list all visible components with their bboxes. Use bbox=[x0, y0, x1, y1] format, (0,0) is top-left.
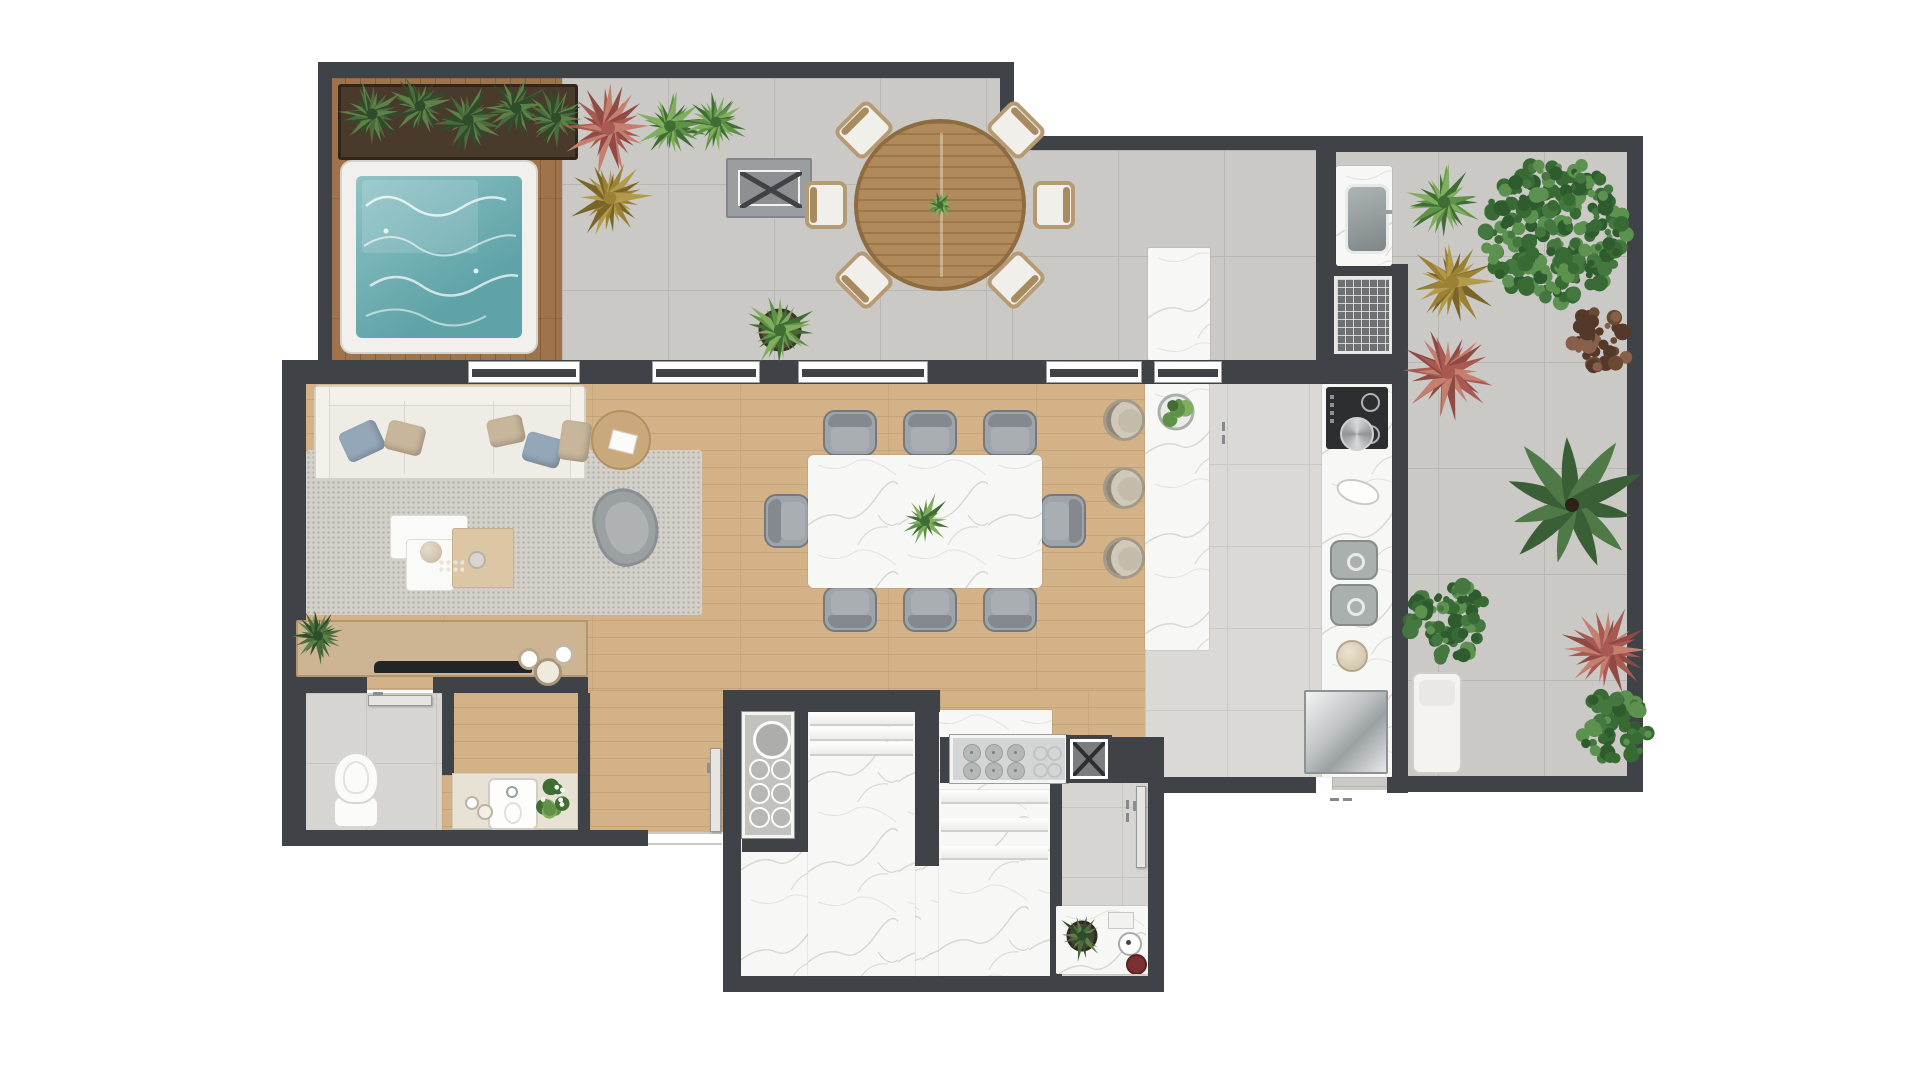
terrace-bench bbox=[726, 158, 812, 218]
entry-threshold bbox=[648, 832, 722, 845]
wall-segment-6 bbox=[1392, 776, 1643, 792]
terrace-lounger bbox=[1412, 672, 1462, 774]
floor-plan-canvas bbox=[0, 0, 1919, 1080]
staircase-lower-flight-tread bbox=[941, 818, 1048, 832]
powder-room-toilet bbox=[333, 752, 379, 804]
kitchen-cooktop bbox=[1326, 387, 1388, 449]
dining-terrace-window-glass bbox=[802, 369, 924, 377]
deck-planter-box bbox=[338, 84, 578, 160]
dining-chair bbox=[1040, 494, 1086, 548]
wall-segment-1 bbox=[318, 62, 332, 362]
living-terrace-window-1 bbox=[468, 361, 580, 383]
island-bar-stool bbox=[1103, 537, 1145, 579]
wall-segment-13 bbox=[442, 693, 454, 775]
wall-segment-21 bbox=[915, 712, 939, 866]
wall-segment-19 bbox=[723, 690, 741, 992]
service-counter bbox=[1056, 906, 1148, 974]
staircase-upper-flight-tread bbox=[810, 727, 913, 741]
counter-bowl bbox=[1336, 640, 1368, 672]
living-room-sofa bbox=[314, 385, 586, 480]
wall-segment-16 bbox=[808, 690, 940, 712]
dining-table-marble bbox=[808, 455, 1042, 588]
vanity-sink-counter bbox=[452, 773, 578, 829]
dining-terrace-window-2-glass bbox=[1050, 369, 1138, 377]
outdoor-round-dining-table bbox=[854, 119, 1026, 291]
dining-chair bbox=[823, 410, 877, 456]
door-handle bbox=[1126, 800, 1132, 822]
staircase-lower-flight-tread bbox=[941, 790, 1048, 804]
wall-segment-12 bbox=[433, 677, 588, 693]
powder-room-door bbox=[368, 695, 432, 706]
barbecue-grill bbox=[1334, 276, 1392, 354]
jacuzzi-spa-pool bbox=[340, 160, 538, 354]
vase bbox=[553, 644, 574, 665]
tv-console bbox=[296, 620, 588, 677]
side-table bbox=[591, 410, 651, 470]
wall-segment-5 bbox=[1627, 136, 1643, 792]
wall-segment-11 bbox=[282, 677, 367, 693]
outdoor-dining-chair bbox=[1033, 181, 1075, 229]
pool-water bbox=[356, 176, 522, 338]
living-terrace-window-1-glass bbox=[472, 369, 576, 377]
dining-terrace-window-2 bbox=[1046, 361, 1142, 383]
canister bbox=[1118, 932, 1142, 956]
barbecue-sink-counter bbox=[1336, 166, 1392, 266]
dining-chair bbox=[903, 410, 957, 456]
vanity-sink bbox=[488, 778, 538, 830]
island-bar-stool bbox=[1103, 399, 1145, 441]
staircase-upper-flight-tread bbox=[810, 742, 913, 756]
wall-segment-18 bbox=[742, 838, 808, 852]
service-door bbox=[1136, 786, 1146, 868]
kettle bbox=[1126, 954, 1147, 974]
dining-chair bbox=[983, 586, 1037, 632]
wall-segment-7 bbox=[1392, 362, 1408, 792]
sofa-pillow bbox=[485, 414, 526, 449]
kitchen-terrace-window bbox=[1154, 361, 1222, 383]
wall-segment-27 bbox=[1387, 777, 1408, 793]
kitchen-island bbox=[1145, 384, 1209, 650]
towel-rack-shelf bbox=[742, 712, 794, 838]
wall-segment-25 bbox=[1148, 737, 1164, 992]
wall-segment-4 bbox=[1332, 136, 1643, 152]
island-bar-stool bbox=[1103, 467, 1145, 509]
tray bbox=[1108, 912, 1134, 929]
wall-segment-26 bbox=[1164, 777, 1316, 793]
kitchen-terrace-window-glass bbox=[1158, 369, 1218, 377]
entry-door bbox=[710, 748, 721, 832]
dining-chair bbox=[983, 410, 1037, 456]
terrace-marble-counter bbox=[1148, 248, 1210, 360]
door-handle bbox=[1330, 798, 1352, 804]
staircase-upper-flight-tread bbox=[810, 712, 913, 726]
living-terrace-window-2 bbox=[652, 361, 760, 383]
wall-segment-0 bbox=[318, 62, 1014, 78]
kitchen-double-sink bbox=[1330, 540, 1378, 626]
book bbox=[608, 429, 638, 455]
dining-chair bbox=[903, 586, 957, 632]
service-shaft bbox=[1066, 735, 1112, 783]
wall-segment-15 bbox=[741, 690, 808, 712]
wall-segment-14 bbox=[578, 693, 590, 832]
sofa-pillow bbox=[383, 419, 427, 457]
wall-segment-3 bbox=[1000, 136, 1334, 150]
sofa-pillow bbox=[337, 418, 387, 464]
pan bbox=[1340, 417, 1374, 451]
wall-segment-20 bbox=[723, 976, 1164, 992]
decor-sprig bbox=[438, 559, 464, 573]
sofa-pillow bbox=[557, 419, 592, 463]
dining-terrace-window bbox=[798, 361, 928, 383]
wall-segment-9 bbox=[282, 360, 306, 846]
living-terrace-window-2-glass bbox=[656, 369, 756, 377]
dining-chair bbox=[764, 494, 810, 548]
service-cooktop-panel bbox=[950, 735, 1068, 783]
sink-faucet bbox=[1376, 210, 1392, 214]
outdoor-dining-chair bbox=[805, 181, 847, 229]
staircase-lower-flight-tread bbox=[941, 846, 1048, 860]
dining-chair bbox=[823, 586, 877, 632]
decor-kettle bbox=[468, 551, 486, 569]
wall-segment-10 bbox=[282, 830, 648, 846]
wall-segment-17 bbox=[794, 712, 808, 838]
door-handle bbox=[1222, 422, 1228, 444]
tv bbox=[374, 661, 532, 673]
refrigerator bbox=[1304, 690, 1388, 774]
barbecue-sink bbox=[1345, 184, 1389, 254]
